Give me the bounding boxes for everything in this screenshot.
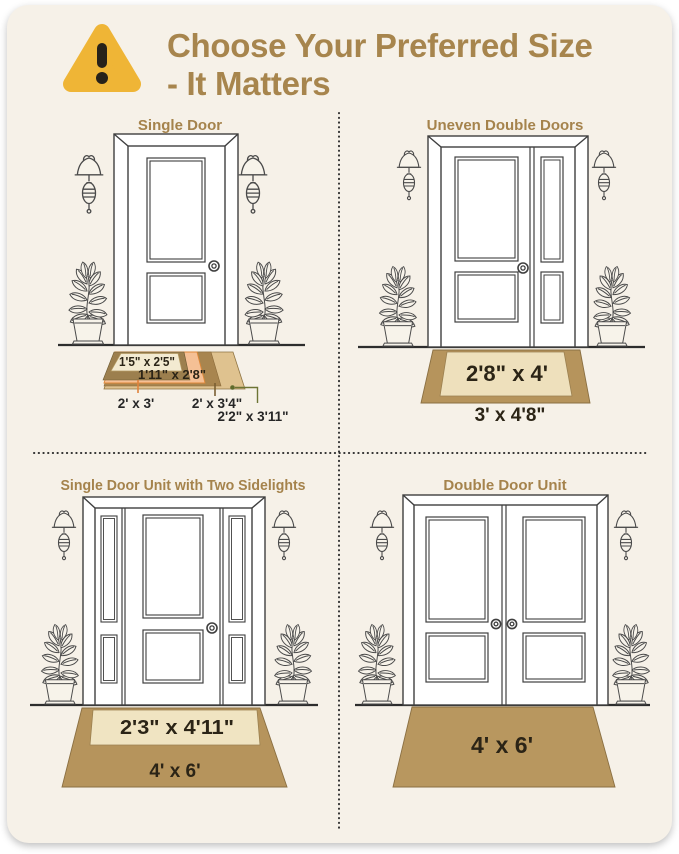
section-title: Single Door bbox=[138, 117, 222, 134]
sconce-icon bbox=[592, 151, 616, 200]
plant-icon bbox=[41, 624, 79, 704]
plant-icon bbox=[274, 624, 312, 704]
door-knob bbox=[207, 623, 217, 633]
scene-canvas: Single Door bbox=[7, 5, 672, 843]
plant-icon bbox=[244, 261, 283, 344]
infographic-page: Single Door bbox=[0, 0, 679, 854]
infographic-card: Single Door bbox=[7, 5, 672, 843]
sconce-icon bbox=[272, 511, 296, 560]
mat-size-label: 2'8" x 4' bbox=[466, 361, 548, 386]
sconce-icon bbox=[52, 511, 76, 560]
mat-size-label: 1'11" x 2'8" bbox=[138, 367, 206, 382]
plant-icon bbox=[358, 624, 396, 704]
door-knob bbox=[491, 619, 500, 628]
mat-size-label: 3' x 4'8" bbox=[475, 405, 546, 426]
plant-icon bbox=[612, 624, 650, 704]
sconce-icon bbox=[370, 511, 394, 560]
section-title: Double Door Unit bbox=[443, 477, 566, 494]
warning-triangle-icon bbox=[62, 19, 142, 105]
sconce-icon bbox=[239, 156, 268, 213]
section-single-door-two-sidelights: Single Door Unit with Two Sidelights bbox=[30, 477, 318, 787]
page-title-line2: - It Matters bbox=[167, 65, 593, 103]
door-knob bbox=[518, 263, 528, 273]
section-uneven-double-doors: Uneven Double Doors bbox=[358, 117, 645, 426]
mat-size-label: 2' x 3' bbox=[118, 396, 154, 411]
exclamation-bar bbox=[97, 43, 107, 68]
mat-size-label: 2'3" x 4'11" bbox=[120, 717, 234, 739]
sconce-icon bbox=[614, 511, 638, 560]
section-double-door-unit: Double Door Unit bbox=[355, 477, 650, 787]
section-single-door: Single Door bbox=[58, 117, 305, 424]
door-illustration-double bbox=[355, 495, 650, 705]
plant-icon bbox=[379, 266, 417, 346]
page-title-line1: Choose Your Preferred Size bbox=[167, 27, 593, 65]
plant-icon bbox=[593, 266, 631, 346]
mat-size-label: 4' x 6' bbox=[149, 761, 200, 782]
page-title: Choose Your Preferred Size - It Matters bbox=[167, 19, 593, 103]
sconce-icon bbox=[75, 156, 104, 213]
exclamation-dot bbox=[96, 72, 108, 84]
section-title: Single Door Unit with Two Sidelights bbox=[61, 477, 306, 494]
door-knob bbox=[507, 619, 516, 628]
header: Choose Your Preferred Size - It Matters bbox=[62, 19, 593, 105]
mat-size-label: 2'2" x 3'11" bbox=[217, 409, 288, 424]
section-title: Uneven Double Doors bbox=[427, 117, 584, 134]
sconce-icon bbox=[397, 151, 421, 200]
mat-size-label: 4' x 6' bbox=[471, 732, 533, 758]
plant-icon bbox=[68, 261, 107, 344]
leader-dot-olive bbox=[230, 385, 235, 390]
door-knob bbox=[209, 261, 219, 271]
